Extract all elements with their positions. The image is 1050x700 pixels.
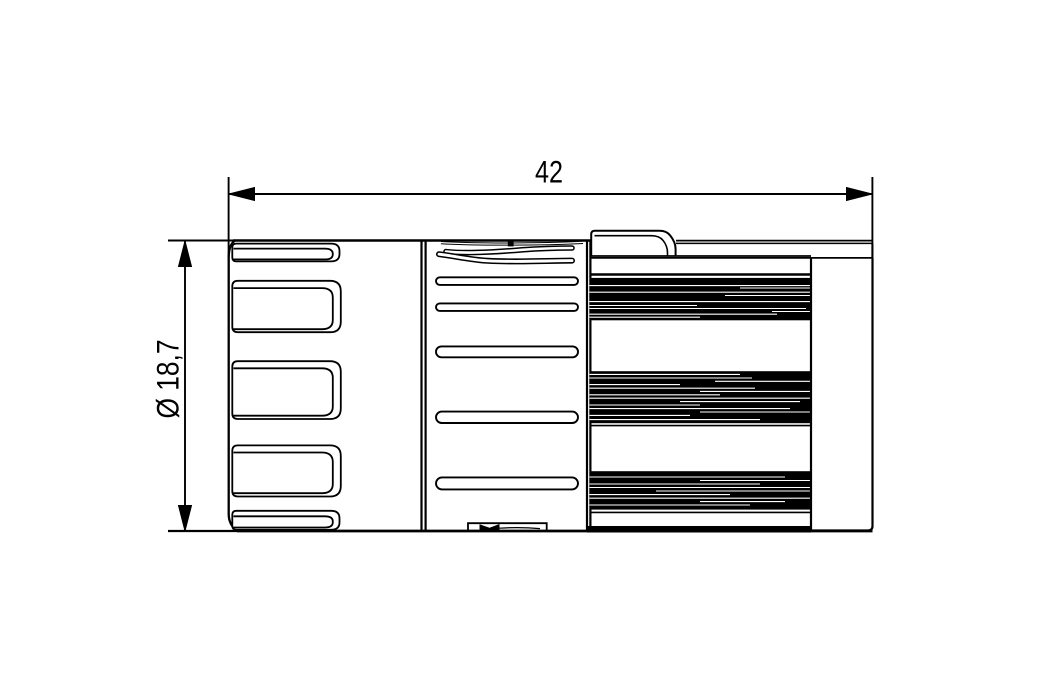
- svg-text:42: 42: [535, 154, 563, 190]
- svg-text:Ø 18,7: Ø 18,7: [150, 340, 186, 419]
